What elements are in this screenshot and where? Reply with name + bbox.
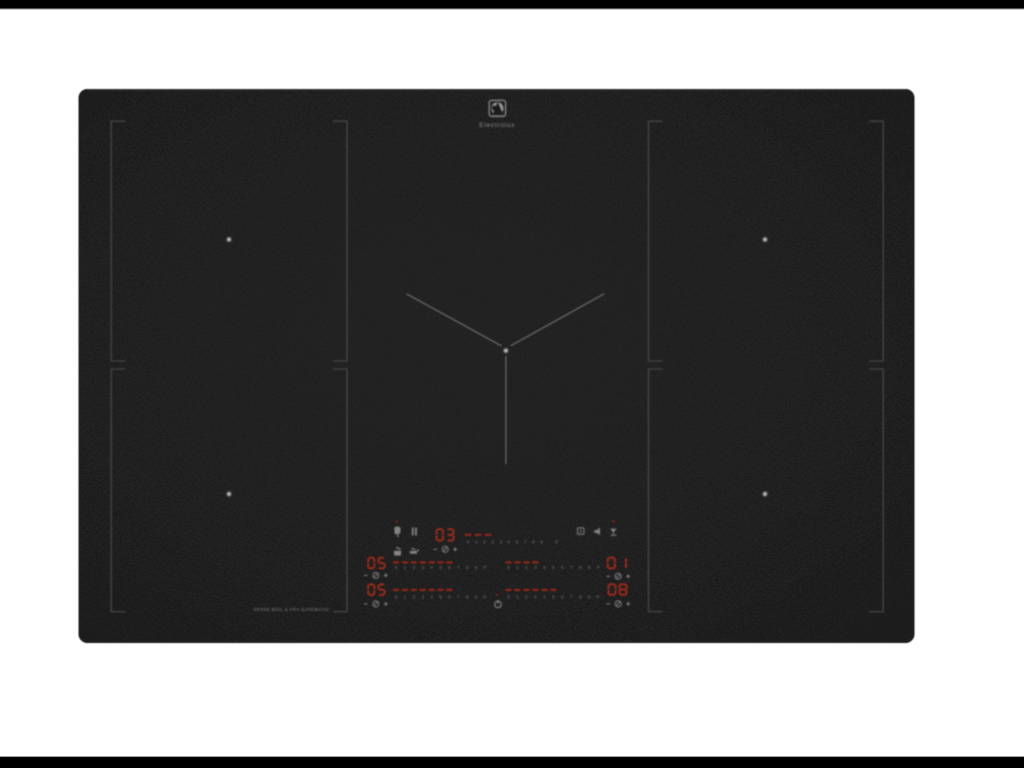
svg-text:Electrolux: Electrolux (479, 122, 515, 129)
svg-text:P: P (483, 565, 486, 570)
svg-text:P: P (555, 539, 558, 544)
svg-text:P: P (597, 594, 600, 599)
svg-text:SENSE BOIL & FRY SAFEMATIC: SENSE BOIL & FRY SAFEMATIC (254, 607, 330, 612)
svg-text:P: P (483, 594, 486, 599)
svg-text:P: P (597, 565, 600, 570)
